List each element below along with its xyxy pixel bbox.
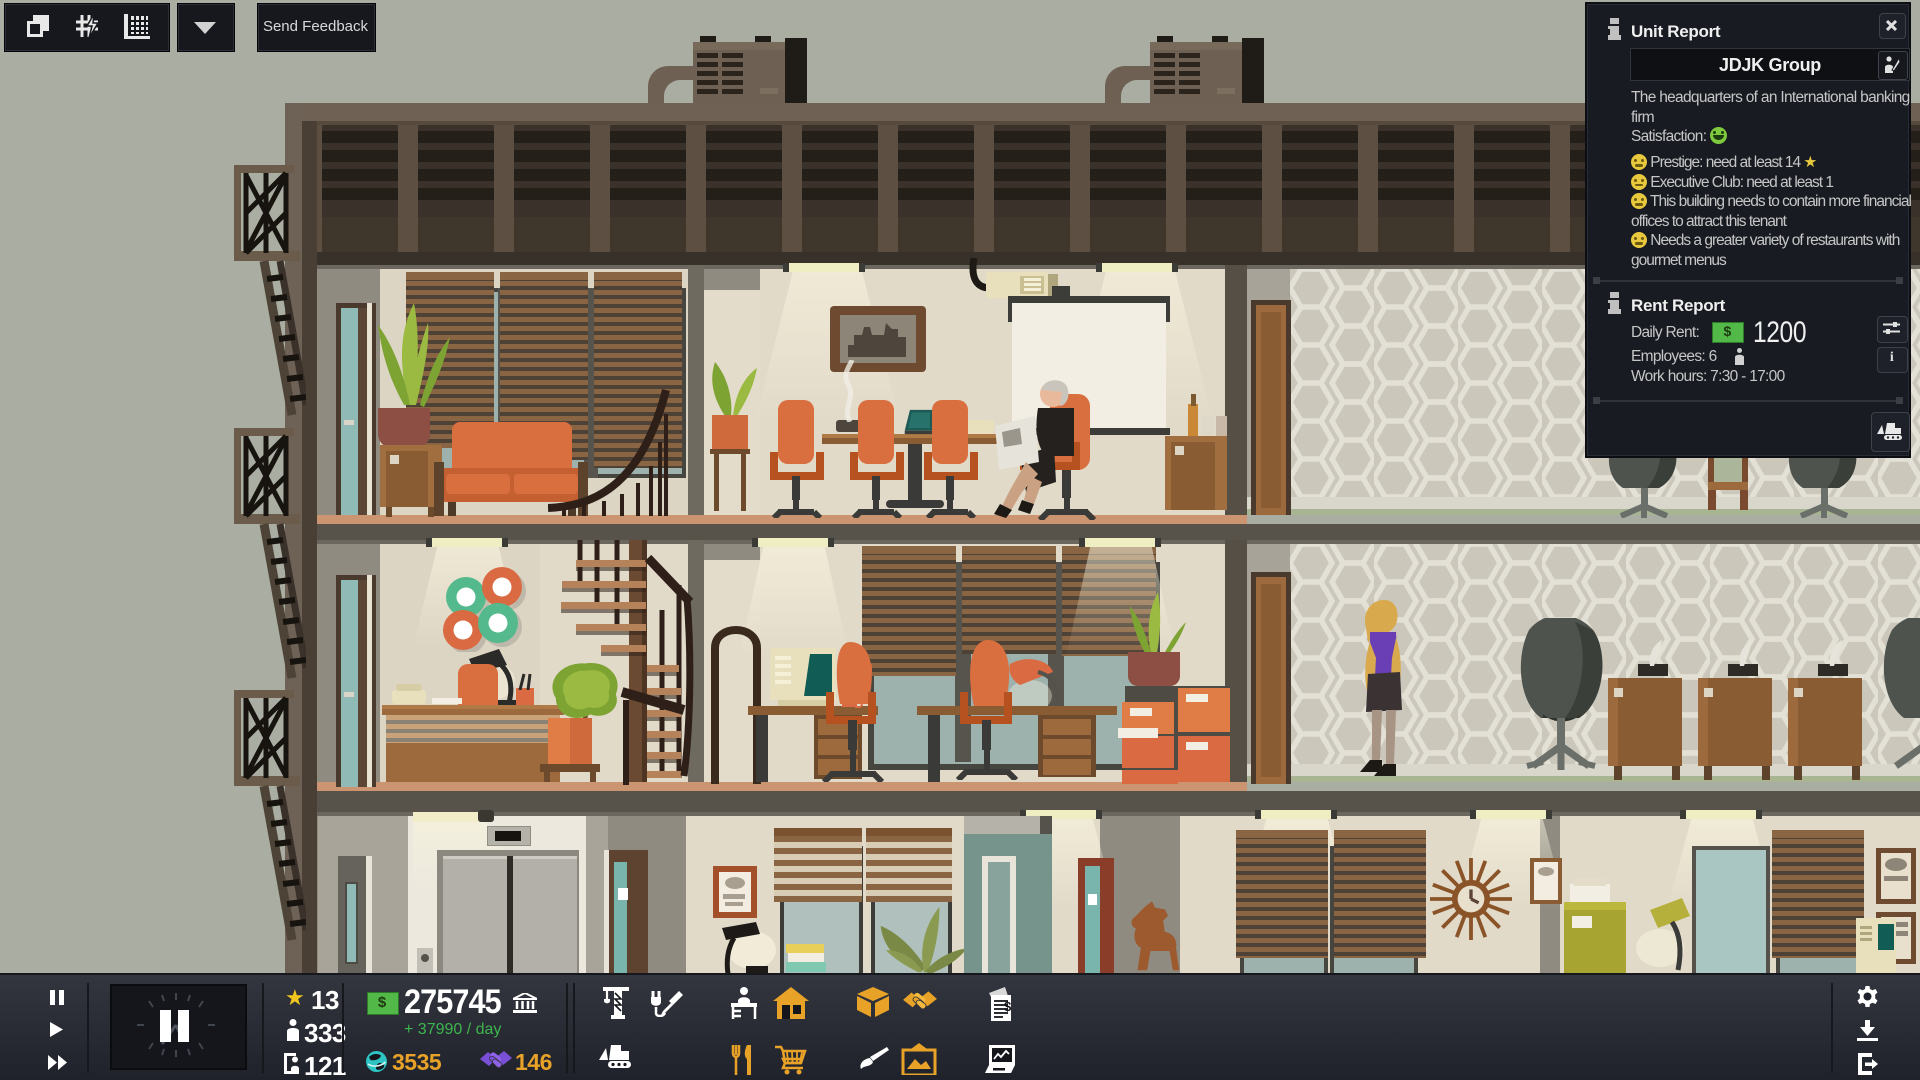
- svg-text:$: $: [1004, 999, 1012, 1014]
